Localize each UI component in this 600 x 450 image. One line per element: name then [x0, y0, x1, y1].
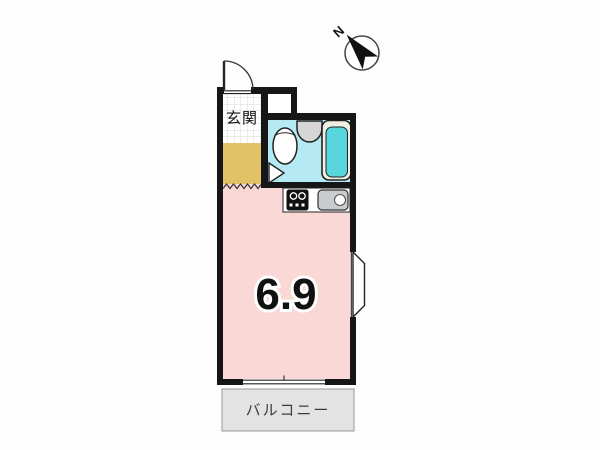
- bathtub-icon: [322, 121, 351, 181]
- genkan-label: 玄関: [226, 110, 258, 127]
- toilet-icon: [273, 128, 297, 164]
- stove-icon: [287, 190, 308, 210]
- washbasin-icon: [297, 121, 322, 142]
- kitchen-sink-icon: [318, 190, 348, 210]
- compass: N: [330, 23, 379, 70]
- closet-floor: [268, 94, 291, 113]
- bay-window-icon: [351, 252, 364, 317]
- entry-door-icon: [224, 61, 253, 94]
- floorplan-drawing: N 玄関 6.9 バルコニー: [0, 0, 600, 450]
- balcony-label: バルコニー: [246, 402, 331, 419]
- floorplan-page: N 玄関 6.9 バルコニー: [0, 0, 600, 450]
- room-size-label: 6.9: [255, 270, 316, 319]
- genkan-step-floor: [223, 143, 261, 184]
- compass-north-label: N: [330, 23, 347, 40]
